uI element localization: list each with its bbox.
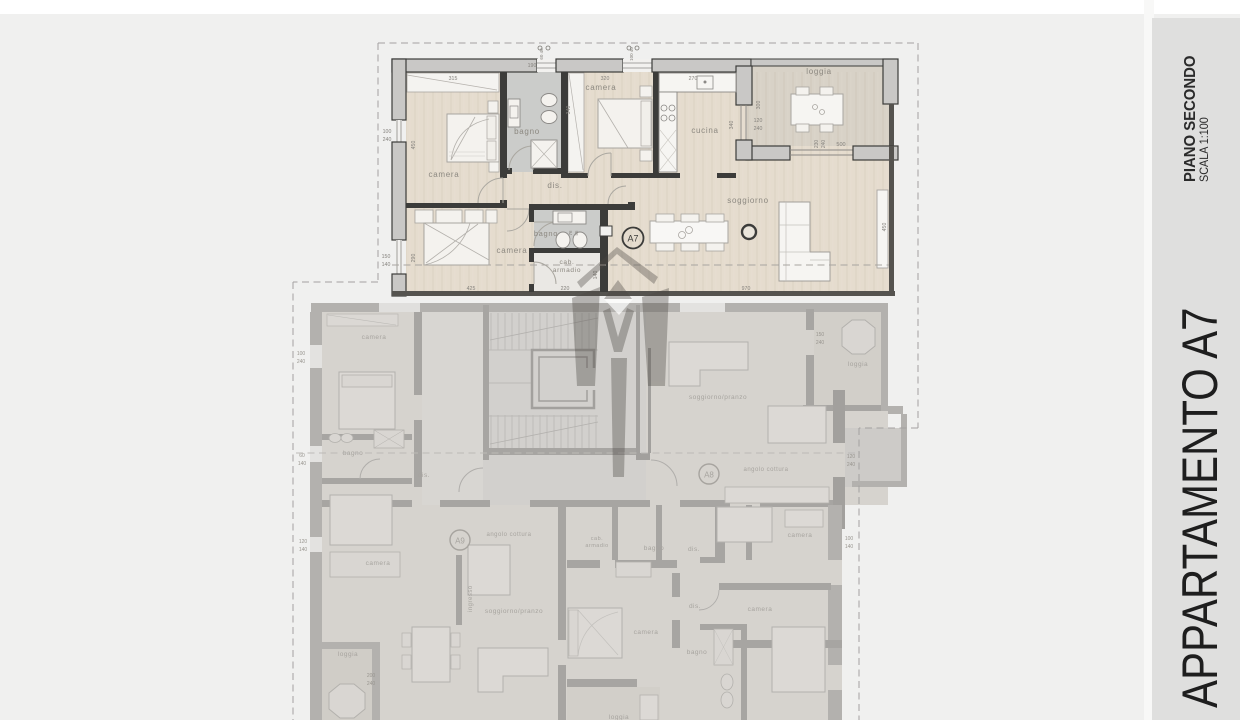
- svg-text:soggiorno: soggiorno: [727, 196, 768, 205]
- svg-text:55: 55: [574, 230, 579, 236]
- svg-text:200: 200: [367, 673, 376, 679]
- svg-text:340: 340: [566, 106, 572, 115]
- svg-text:320: 320: [601, 76, 610, 82]
- svg-text:500: 500: [836, 142, 845, 148]
- svg-text:140: 140: [845, 544, 854, 550]
- svg-text:140: 140: [298, 461, 307, 467]
- svg-text:970: 970: [742, 286, 751, 292]
- svg-text:100: 100: [383, 129, 392, 135]
- svg-text:290: 290: [411, 254, 417, 263]
- svg-text:bagno: bagno: [534, 229, 558, 238]
- svg-text:425: 425: [467, 286, 476, 292]
- svg-text:loggia: loggia: [848, 361, 868, 368]
- svg-text:450: 450: [882, 223, 888, 232]
- svg-text:270: 270: [689, 76, 698, 82]
- svg-text:dis.: dis.: [688, 546, 700, 553]
- svg-text:240: 240: [754, 126, 763, 132]
- svg-text:dis.: dis.: [418, 472, 430, 479]
- svg-text:loggia: loggia: [338, 651, 358, 658]
- svg-text:bagno: bagno: [514, 127, 540, 136]
- svg-text:240: 240: [816, 340, 825, 346]
- svg-text:150: 150: [816, 332, 825, 338]
- svg-text:angolo cottura: angolo cottura: [743, 467, 788, 473]
- svg-text:SCALA 1:100: SCALA 1:100: [1199, 117, 1212, 182]
- svg-text:140: 140: [382, 262, 391, 268]
- svg-text:240: 240: [367, 681, 376, 687]
- svg-text:ingresso: ingresso: [468, 585, 474, 612]
- svg-text:camera: camera: [788, 532, 813, 539]
- svg-text:dis.: dis.: [689, 603, 701, 610]
- svg-text:220: 220: [561, 286, 570, 292]
- svg-text:240: 240: [383, 137, 392, 143]
- svg-text:camera: camera: [429, 170, 460, 179]
- svg-text:angolo cottura: angolo cottura: [486, 532, 531, 538]
- svg-text:cucina: cucina: [691, 126, 718, 135]
- svg-text:120: 120: [754, 118, 763, 124]
- svg-text:140: 140: [299, 547, 308, 553]
- svg-text:armadio: armadio: [585, 543, 608, 549]
- svg-text:100: 100: [845, 536, 854, 542]
- svg-text:loggia: loggia: [806, 67, 832, 76]
- svg-text:150: 150: [382, 254, 391, 260]
- svg-text:soggiorno/pranzo: soggiorno/pranzo: [485, 608, 543, 615]
- svg-text:315: 315: [449, 76, 458, 82]
- svg-text:230: 230: [814, 140, 820, 149]
- svg-text:camera: camera: [634, 629, 659, 636]
- svg-text:bagno: bagno: [687, 649, 708, 656]
- svg-text:bagno: bagno: [644, 545, 665, 552]
- svg-text:soggiorno/pranzo: soggiorno/pranzo: [689, 394, 747, 401]
- svg-text:camera: camera: [497, 246, 528, 255]
- svg-text:loggia: loggia: [609, 714, 629, 720]
- svg-text:240: 240: [821, 140, 827, 149]
- svg-text:cab.: cab.: [591, 536, 603, 542]
- svg-text:camera: camera: [586, 83, 617, 92]
- svg-text:A9: A9: [455, 537, 465, 546]
- svg-text:camera: camera: [748, 606, 773, 613]
- svg-text:100 40: 100 40: [629, 47, 634, 61]
- svg-text:240: 240: [297, 359, 306, 365]
- svg-text:450: 450: [411, 141, 417, 150]
- svg-text:120: 120: [847, 454, 856, 460]
- svg-text:100: 100: [297, 351, 306, 357]
- svg-text:A8: A8: [704, 471, 714, 480]
- svg-text:dis.: dis.: [547, 181, 562, 190]
- svg-text:armadio: armadio: [553, 267, 581, 274]
- svg-text:76: 76: [568, 230, 573, 236]
- svg-text:APPARTAMENTO A7: APPARTAMENTO A7: [1172, 307, 1228, 708]
- svg-text:camera: camera: [366, 560, 391, 567]
- svg-text:300: 300: [756, 101, 762, 110]
- svg-text:190: 190: [528, 63, 537, 69]
- svg-text:240: 240: [847, 462, 856, 468]
- svg-text:120: 120: [299, 539, 308, 545]
- svg-text:camera: camera: [362, 334, 387, 341]
- svg-text:PIANO SECONDO: PIANO SECONDO: [1182, 56, 1200, 182]
- svg-text:60: 60: [299, 453, 305, 459]
- svg-text:A7: A7: [627, 234, 638, 244]
- svg-text:340: 340: [729, 121, 735, 130]
